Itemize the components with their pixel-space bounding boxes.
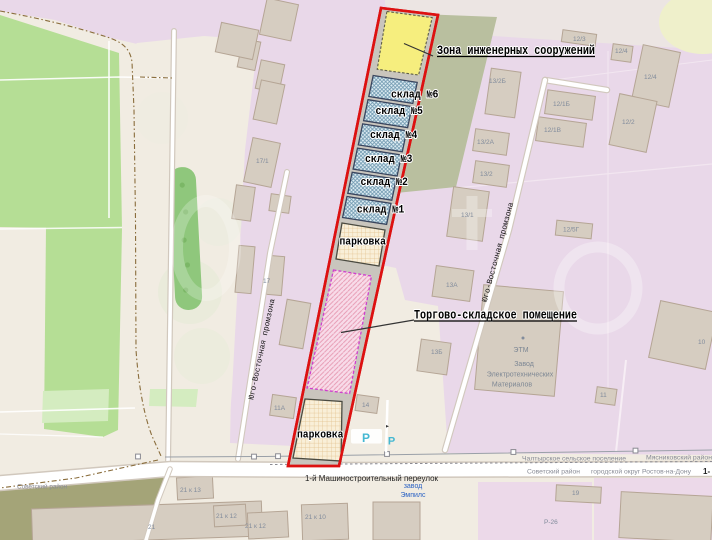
svg-text:городской округ Ростов-на-Дону: городской округ Ростов-на-Дону [591, 468, 692, 476]
svg-text:Мясниковский район: Мясниковский район [646, 454, 712, 462]
svg-text:21 к 12: 21 к 12 [216, 513, 237, 520]
svg-text:13/2Б: 13/2Б [489, 78, 506, 85]
svg-text:12/4: 12/4 [615, 48, 628, 55]
svg-text:11: 11 [600, 392, 607, 399]
svg-text:21 к 10: 21 к 10 [305, 514, 326, 521]
svg-text:21 к 12: 21 к 12 [245, 523, 266, 530]
svg-text:21: 21 [148, 524, 156, 531]
svg-text:завод: завод [404, 483, 423, 490]
svg-text:1-: 1- [703, 467, 710, 476]
svg-text:13/1: 13/1 [461, 212, 474, 219]
svg-text:Зона инженерных сооружений: Зона инженерных сооружений [437, 43, 595, 58]
svg-text:21 к 13: 21 к 13 [180, 487, 201, 494]
svg-text:склад №6: склад №6 [391, 89, 439, 101]
svg-text:13/2: 13/2 [480, 171, 493, 178]
svg-text:Торгово-складское помещение: Торгово-складское помещение [414, 308, 577, 323]
svg-text:17: 17 [263, 278, 271, 285]
svg-text:19: 19 [572, 490, 580, 497]
svg-text:склад №2: склад №2 [361, 177, 409, 189]
svg-text:12/2: 12/2 [622, 119, 635, 126]
svg-text:1-й Машиностроительный переуло: 1-й Машиностроительный переулок [305, 474, 438, 483]
svg-text:12/4: 12/4 [644, 74, 657, 81]
svg-text:11А: 11А [274, 405, 286, 412]
svg-text:10: 10 [698, 339, 706, 346]
svg-text:Советский район: Советский район [527, 468, 580, 476]
svg-text:12/5Г: 12/5Г [563, 227, 580, 234]
svg-text:Завод: Завод [514, 361, 534, 368]
svg-text:склад №3: склад №3 [365, 154, 413, 166]
svg-text:склад №4: склад №4 [370, 130, 418, 142]
svg-text:13А: 13А [446, 282, 458, 289]
svg-text:Р: Р [362, 431, 370, 445]
svg-text:парковка: парковка [297, 429, 344, 441]
svg-text:13Б: 13Б [431, 349, 443, 356]
svg-text:12/1В: 12/1В [544, 127, 561, 134]
svg-text:Чалтырское сельское поселение: Чалтырское сельское поселение [522, 456, 626, 463]
svg-text:ЭТМ: ЭТМ [513, 347, 528, 354]
svg-text:Р: Р [388, 436, 395, 448]
svg-text:парковка: парковка [340, 236, 387, 248]
svg-text:12/3: 12/3 [573, 36, 586, 43]
svg-text:Эмпилс: Эмпилс [400, 492, 426, 499]
svg-text:Электротехнических: Электротехнических [487, 372, 554, 379]
svg-text:склад №1: склад №1 [357, 205, 405, 217]
svg-text:склад №5: склад №5 [376, 106, 424, 118]
svg-text:12/1Б: 12/1Б [553, 101, 570, 108]
svg-text:17/1: 17/1 [256, 158, 269, 165]
svg-text:13/2А: 13/2А [477, 139, 495, 146]
svg-text:Советский район: Советский район [17, 483, 67, 491]
svg-text:Материалов: Материалов [492, 382, 532, 389]
svg-text:Р-26: Р-26 [544, 519, 558, 526]
svg-text:14: 14 [362, 402, 370, 409]
